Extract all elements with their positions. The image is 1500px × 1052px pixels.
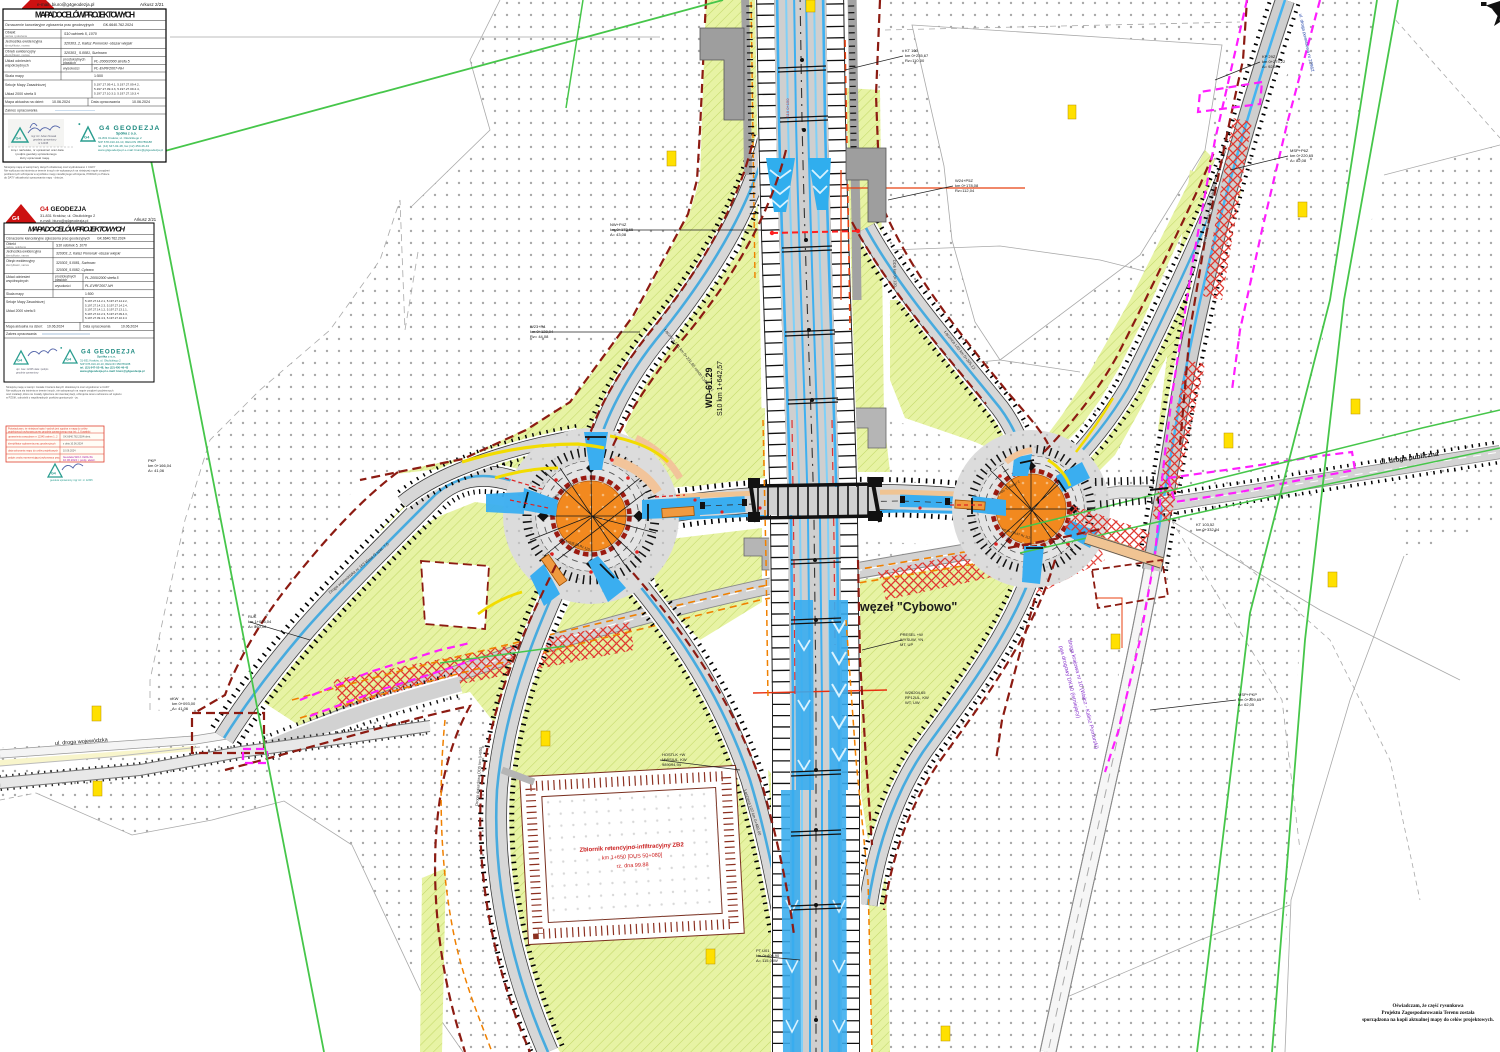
svg-text:5.197.27.09.4.3, 5.197.27.09.4: 5.197.27.09.4.3, 5.197.27.09.4.4, — [94, 87, 140, 91]
svg-text:10.06.2024: 10.06.2024 — [52, 100, 70, 104]
svg-text:Spółka z o.o.: Spółka z o.o. — [116, 132, 137, 136]
svg-text:wysokości: wysokości — [63, 67, 80, 71]
svg-text:w PZGiK, odnośnik o współrzędn: w PZGiK, odnośnik o współrzędnych punktó… — [6, 396, 79, 400]
svg-text:km 0+332,04: km 0+332,04 — [1196, 527, 1220, 532]
svg-text:GK.6640.762.2024 ident.: GK.6640.762.2024 ident. — [63, 436, 91, 439]
svg-text:współrzędnych: współrzędnych — [6, 279, 29, 283]
svg-text:oraz instalacji, które nie zos: oraz instalacji, które nie zostały zgłos… — [6, 392, 122, 396]
svg-text:z dnia 10.06.2024: z dnia 10.06.2024 — [63, 443, 83, 446]
svg-text:31-831 Kraków, ul. Okulickiego: 31-831 Kraków, ul. Okulickiego 2 — [40, 214, 95, 218]
svg-text:10.06.2024: 10.06.2024 — [47, 325, 64, 329]
svg-text:Skala mapy: Skala mapy — [5, 74, 24, 78]
svg-text:Arkusz 2/21: Arkusz 2/21 — [134, 217, 157, 222]
svg-text:geodeta uprawniony: geodeta uprawniony — [33, 138, 57, 142]
svg-text:G4: G4 — [17, 359, 23, 363]
svg-text:podziemnych uzbrojenia w wyrob: podziemnych uzbrojenia w wyrobisku mapy … — [4, 172, 110, 176]
svg-text:989094,94: 989094,94 — [662, 762, 682, 767]
svg-text:Mapa aktualna na dzień:: Mapa aktualna na dzień: — [5, 100, 44, 104]
svg-text:WT, UW: WT, UW — [905, 700, 920, 705]
svg-text:G4: G4 — [51, 472, 56, 476]
svg-text:320303_ 5.0081, Suchowo: 320303_ 5.0081, Suchowo — [64, 51, 107, 55]
svg-text:MAPA DO CELÓW PROJEKTOWYCH: MAPA DO CELÓW PROJEKTOWYCH — [35, 9, 135, 20]
svg-text:nazwa, położenie: nazwa, położenie — [6, 245, 27, 249]
svg-text:G4: G4 — [84, 135, 90, 140]
svg-text:PL-EVRF2007-NH: PL-EVRF2007-NH — [85, 284, 113, 288]
svg-text:identyfikator, nazwa: identyfikator, nazwa — [6, 254, 29, 258]
svg-text:5.197.27.09.4.3, 5.197.27.10.3: 5.197.27.09.4.3, 5.197.27.10.3.4 — [85, 316, 127, 320]
svg-text:do DATY aktualności opracowani: do DATY aktualności opracowania mapy - d… — [4, 176, 64, 180]
svg-text:który opracował mapę: który opracował mapę — [20, 156, 50, 160]
svg-text:identyfikator, nazwa: identyfikator, nazwa — [5, 53, 30, 57]
svg-text:Sekcje Mapy Zasadniczej: Sekcje Mapy Zasadniczej — [5, 83, 46, 87]
svg-text:geodeta uprawniony: geodeta uprawniony — [16, 372, 39, 375]
svg-text:wysokości: wysokości — [55, 284, 71, 288]
svg-text:Nie wyklucza się istnienia w t: Nie wyklucza się istnienia w terenie inn… — [6, 389, 114, 393]
svg-text:A= 92,57: A= 92,57 — [1262, 64, 1279, 69]
svg-text:Skala mapy: Skala mapy — [6, 292, 24, 296]
svg-text:A= 82,08: A= 82,08 — [1290, 158, 1307, 163]
svg-text:uprawnienia zawodowe nr 12345: uprawnienia zawodowe nr 12345 zakres 1, … — [8, 436, 58, 439]
svg-text:www.g4geodezja.pl e-mail: biur: www.g4geodezja.pl e-mail: biuro@g4geodez… — [98, 148, 163, 152]
svg-text:PL-2000/2000 strefa 5: PL-2000/2000 strefa 5 — [94, 60, 130, 64]
svg-text:320305_5.0082, Cybowo: 320305_5.0082, Cybowo — [56, 268, 94, 272]
svg-text:data wykonania mapy do celów p: data wykonania mapy do celów projektowyc… — [8, 450, 59, 453]
svg-text:S10 odcinek 5, 1070: S10 odcinek 5, 1070 — [64, 32, 97, 36]
svg-text:współrzędnych: współrzędnych — [5, 64, 29, 68]
svg-text:320303_2, Kalisz Pomorski -obs: 320303_2, Kalisz Pomorski -obszar wiejsk… — [64, 42, 132, 46]
svg-text:Mapa aktualna na dzień:: Mapa aktualna na dzień: — [6, 325, 43, 329]
svg-text:projektowych wykonaną przez ge: projektowych wykonaną przez geodetę upra… — [8, 431, 91, 434]
svg-text:A= 41,06: A= 41,06 — [148, 468, 165, 473]
svg-text:Układ odniesień: Układ odniesień — [5, 59, 31, 63]
svg-text:Układ 2000 strefa 5: Układ 2000 strefa 5 — [6, 309, 36, 313]
svg-text:Rz=110,00: Rz=110,00 — [905, 58, 925, 63]
svg-text:S10 0+150: S10 0+150 — [785, 98, 790, 118]
svg-text:320303_2, Kalisz Pomorski -obs: 320303_2, Kalisz Pomorski -obszar wiejsk… — [56, 252, 121, 256]
svg-text:G4: G4 — [16, 136, 22, 141]
svg-text:320303_5.0081, Suchowo: 320303_5.0081, Suchowo — [56, 261, 96, 265]
svg-text:sporządzona na kopii aktualnej: sporządzona na kopii aktualnej mapy do c… — [1362, 1018, 1495, 1023]
svg-text:5.197.27.10.3.3, 5.197.27.10.3: 5.197.27.10.3.3, 5.197.27.10.3.4 — [94, 92, 139, 96]
svg-text:1:500: 1:500 — [85, 292, 94, 296]
svg-text:S10 km 1+642,57: S10 km 1+642,57 — [717, 361, 724, 416]
svg-text:●: ● — [78, 122, 81, 127]
svg-text:DD6 km 0+120: DD6 km 0+120 — [892, 260, 898, 288]
svg-text:mgr inż. Adam Nowak: mgr inż. Adam Nowak — [31, 134, 57, 138]
svg-text:A= 43,08: A= 43,08 — [610, 232, 627, 237]
svg-text:A= 115,00W: A= 115,00W — [756, 958, 778, 963]
svg-text:G4 GEODEZJA: G4 GEODEZJA — [40, 206, 87, 213]
svg-text:PL-2000/2000 strefa 5: PL-2000/2000 strefa 5 — [85, 276, 119, 280]
svg-text:podpis osoby reprezentującej w: podpis osoby reprezentującej wykonawcę p… — [8, 457, 60, 460]
svg-text:A= 41,06: A= 41,06 — [172, 706, 189, 711]
svg-text:G4: G4 — [66, 358, 72, 362]
svg-text:Obręb ewidencyjny: Obręb ewidencyjny — [6, 259, 35, 263]
svg-text:MT, UP: MT, UP — [900, 642, 913, 647]
svg-text:płaskich: płaskich — [63, 61, 76, 65]
svg-text:Sekcje Mapy Zasadniczej: Sekcje Mapy Zasadniczej — [6, 300, 45, 304]
svg-text:Układ 2000 strefa 5: Układ 2000 strefa 5 — [5, 92, 36, 96]
svg-text:10.06.2024: 10.06.2024 — [63, 450, 76, 453]
svg-text:Projektu Zagospodarowania Tere: Projektu Zagospodarowania Terenu została — [1382, 1011, 1475, 1016]
svg-text:10.06.2024: 10.06.2024 — [132, 100, 150, 104]
svg-text:Zakres opracowania: Zakres opracowania — [6, 332, 37, 336]
svg-text:identyfikator, nazwa: identyfikator, nazwa — [6, 263, 29, 267]
svg-text:A= 62,05: A= 62,05 — [1238, 702, 1255, 707]
svg-text:10.06.2024: 10.06.2024 — [121, 325, 138, 329]
svg-text:nazwa i położenie: nazwa i położenie — [5, 34, 28, 38]
svg-text:Data opracowania: Data opracowania — [83, 325, 110, 329]
svg-text:Jednostka ewidencyjna: Jednostka ewidencyjna — [6, 250, 41, 254]
svg-text:Oznaczenie kancelaryjne zgłosz: Oznaczenie kancelaryjne zgłoszenia prac … — [6, 237, 90, 241]
svg-text:Arkusz 2/21: Arkusz 2/21 — [140, 2, 164, 7]
svg-text:10.06.2024 r. podp. elektr.: 10.06.2024 r. podp. elektr. — [63, 458, 96, 462]
svg-text:Niniejszą mapę w wersji i zost: Niniejszą mapę w wersji i została z baza… — [6, 385, 110, 389]
svg-text:S10 odcinek 5, 1070: S10 odcinek 5, 1070 — [56, 244, 87, 248]
svg-text:G4: G4 — [12, 216, 20, 222]
svg-text:GK.6640.762.2024: GK.6640.762.2024 — [103, 23, 133, 27]
svg-text:PL-EVRF2007-NH: PL-EVRF2007-NH — [94, 67, 124, 71]
svg-text:5.197.27.09.4.1, 5.197.27.09.4: 5.197.27.09.4.1, 5.197.27.09.4.2, — [94, 83, 140, 87]
svg-text:e-mail: biuro@g4geodezja.pl: e-mail: biuro@g4geodezja.pl — [37, 2, 94, 7]
svg-text:nr 12345: nr 12345 — [38, 141, 49, 145]
svg-text:płaskich: płaskich — [55, 278, 67, 282]
svg-text:Oświadczam, że część rysunkowa: Oświadczam, że część rysunkowa — [1392, 1004, 1464, 1009]
svg-text:Data opracowania: Data opracowania — [91, 100, 120, 104]
svg-text:węzeł "Cybowo": węzeł "Cybowo" — [859, 600, 957, 614]
svg-text:Rz=112,04: Rz=112,04 — [955, 188, 975, 193]
svg-text:Zakres opracowania: Zakres opracowania — [5, 109, 37, 113]
svg-text:identyfikator, nazwa: identyfikator, nazwa — [5, 44, 30, 48]
svg-text:MAPA DO CELÓW PROJEKTOWYCH: MAPA DO CELÓW PROJEKTOWYCH — [28, 225, 126, 234]
svg-text:Rz= 44,08: Rz= 44,08 — [530, 334, 549, 339]
svg-text:e-mail: biuro@g4geodezja.pl: e-mail: biuro@g4geodezja.pl — [40, 219, 89, 223]
svg-text:Nie wyklucza się istnienia w t: Nie wyklucza się istnienia w terenie inn… — [4, 169, 110, 173]
svg-text:GK.6640.762.2024: GK.6640.762.2024 — [97, 237, 126, 241]
svg-text:1:500: 1:500 — [94, 74, 103, 78]
svg-text:Niniejszą mapę w wersji bazy d: Niniejszą mapę w wersji bazy danych obie… — [4, 165, 96, 169]
svg-text:Oznaczenie kancelaryjne zgłosz: Oznaczenie kancelaryjne zgłoszenia prac … — [5, 23, 94, 27]
svg-text:geodeta uprawniony mgr inż. nr: geodeta uprawniony mgr inż. nr 12345 — [50, 479, 93, 482]
svg-text:www.g4geodezja.pl e-mail: biur: www.g4geodezja.pl e-mail: biuro@g4geodez… — [79, 369, 145, 373]
svg-text:identyfikator zgłoszenia prac: identyfikator zgłoszenia prac geodezyjny… — [8, 443, 56, 446]
